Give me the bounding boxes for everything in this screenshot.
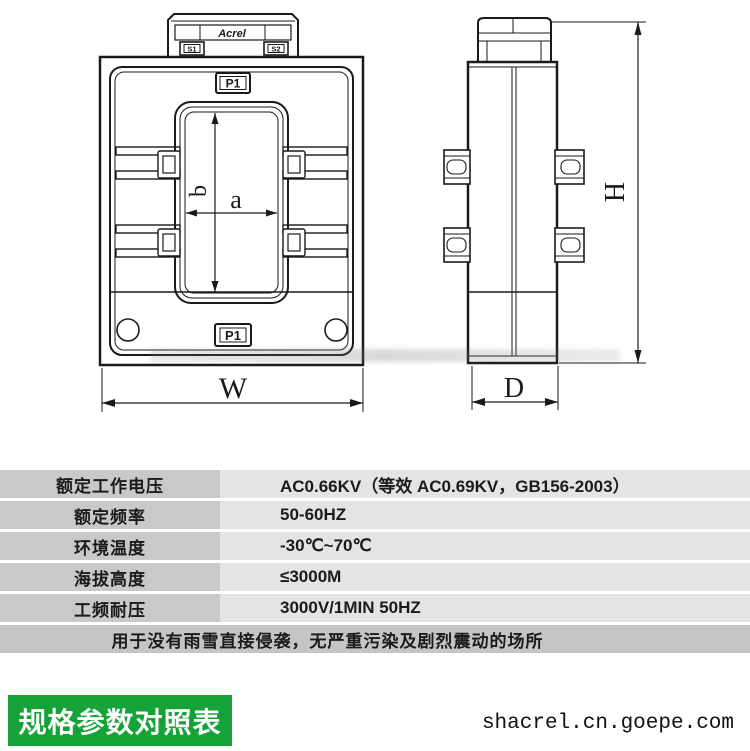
dim-w-label: W: [219, 372, 248, 405]
spec-table: 额定工作电压 AC0.66KV（等效 AC0.69KV，GB156-2003） …: [0, 470, 750, 653]
mounting-hole-left: [117, 319, 139, 341]
spec-label: 海拔高度: [0, 563, 220, 591]
dim-d-label: D: [504, 373, 524, 404]
clip-left-top: [116, 147, 180, 179]
dimension-h: H: [551, 22, 646, 363]
rail-right-bottom: [555, 228, 584, 262]
clip-right-top: [283, 147, 347, 179]
terminal-block: Acrel S1 S2: [168, 14, 298, 57]
rail-left-bottom: [444, 228, 470, 262]
side-body: [468, 62, 557, 363]
spec-value: -30℃~70℃: [220, 532, 750, 560]
clip-right-bottom: [283, 225, 347, 257]
spec-value: 50-60HZ: [220, 501, 750, 529]
p1-badge-bottom: P1: [215, 324, 251, 346]
spec-label: 额定频率: [0, 501, 220, 529]
table-row: 环境温度 -30℃~70℃: [0, 532, 750, 560]
section-title-badge: 规格参数对照表: [8, 695, 232, 746]
spec-value: ≤3000M: [220, 563, 750, 591]
clip-left-bottom: [116, 225, 180, 257]
dimension-d: D: [472, 366, 558, 410]
mounting-hole-right: [325, 319, 347, 341]
dimension-w: W: [102, 368, 363, 412]
site-watermark: shacrel.cn.goepe.com: [482, 712, 734, 735]
side-terminal-cap: [478, 18, 551, 62]
table-row: 额定频率 50-60HZ: [0, 501, 750, 529]
faint-watermark: [150, 349, 620, 362]
dimension-b: b: [186, 113, 219, 292]
spec-label: 额定工作电压: [0, 470, 220, 498]
dim-a-label: a: [230, 185, 242, 214]
p1-badge-top: P1: [216, 73, 250, 93]
rail-left-top: [444, 150, 470, 184]
p1-bottom-label: P1: [225, 328, 241, 343]
table-row: 海拔高度 ≤3000M: [0, 563, 750, 591]
spec-value: AC0.66KV（等效 AC0.69KV，GB156-2003）: [220, 470, 750, 498]
table-row: 额定工作电压 AC0.66KV（等效 AC0.69KV，GB156-2003）: [0, 470, 750, 498]
table-row: 工频耐压 3000V/1MIN 50HZ: [0, 594, 750, 622]
terminal-s1-label: S1: [187, 45, 196, 54]
terminal-s2-label: S2: [271, 45, 280, 54]
p1-top-label: P1: [226, 77, 241, 91]
spec-label: 环境温度: [0, 532, 220, 560]
spec-label: 工频耐压: [0, 594, 220, 622]
usage-note: 用于没有雨雪直接侵袭，无严重污染及剧烈震动的场所: [0, 625, 750, 653]
rail-right-top: [555, 150, 584, 184]
dim-h-label: H: [600, 182, 631, 202]
spec-value: 3000V/1MIN 50HZ: [220, 594, 750, 622]
brand-logo: Acrel: [217, 28, 246, 40]
dim-b-label: b: [186, 185, 212, 197]
